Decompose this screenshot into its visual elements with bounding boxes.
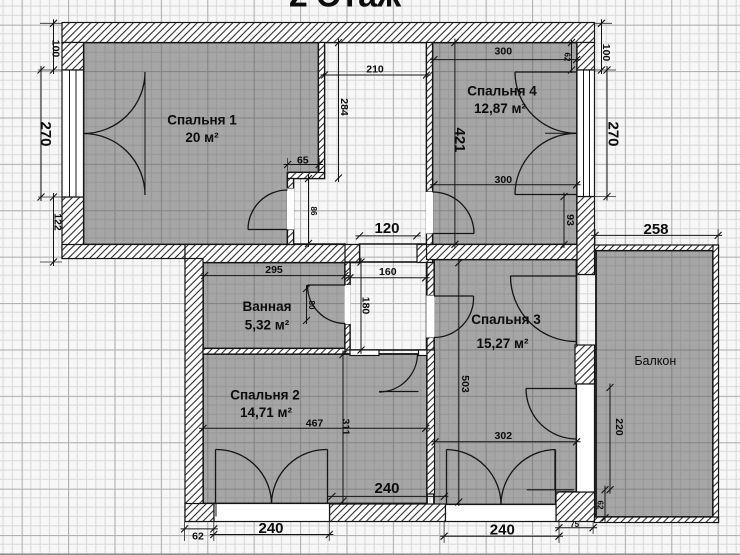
svg-text:Ванная: Ванная xyxy=(243,299,292,314)
svg-text:270: 270 xyxy=(37,121,54,146)
svg-text:Спальня 3: Спальня 3 xyxy=(471,312,541,327)
svg-text:220: 220 xyxy=(613,418,625,436)
svg-text:300: 300 xyxy=(495,46,513,58)
svg-text:503: 503 xyxy=(459,375,471,393)
svg-text:300: 300 xyxy=(495,174,513,186)
svg-text:62: 62 xyxy=(192,531,204,543)
svg-text:210: 210 xyxy=(366,64,384,76)
svg-text:311: 311 xyxy=(340,419,352,436)
svg-text:467: 467 xyxy=(306,418,324,430)
svg-text:5,32 м²: 5,32 м² xyxy=(245,318,290,333)
svg-text:122: 122 xyxy=(52,213,64,231)
svg-text:62: 62 xyxy=(596,501,605,510)
svg-text:Спальня 2: Спальня 2 xyxy=(230,387,300,402)
svg-text:14,71 м²: 14,71 м² xyxy=(240,405,293,420)
svg-text:93: 93 xyxy=(564,214,576,226)
svg-text:258: 258 xyxy=(643,221,668,238)
svg-text:100: 100 xyxy=(50,40,62,58)
svg-text:421: 421 xyxy=(451,127,468,152)
svg-text:62: 62 xyxy=(563,53,572,62)
svg-text:12,87 м²: 12,87 м² xyxy=(474,101,527,116)
svg-text:295: 295 xyxy=(265,264,283,276)
svg-text:80: 80 xyxy=(307,301,316,310)
svg-text:240: 240 xyxy=(490,522,515,539)
svg-text:240: 240 xyxy=(258,520,283,537)
svg-text:15,27 м²: 15,27 м² xyxy=(476,336,529,351)
svg-text:100: 100 xyxy=(600,44,612,62)
svg-text:284: 284 xyxy=(338,98,350,116)
svg-text:270: 270 xyxy=(605,121,622,146)
svg-text:75: 75 xyxy=(570,520,579,529)
svg-text:240: 240 xyxy=(374,480,399,497)
svg-text:2 Этаж: 2 Этаж xyxy=(289,0,402,15)
svg-text:Спальня 4: Спальня 4 xyxy=(467,84,537,99)
svg-text:302: 302 xyxy=(495,430,513,442)
svg-text:180: 180 xyxy=(360,297,372,315)
svg-text:160: 160 xyxy=(379,266,397,278)
svg-text:Балкон: Балкон xyxy=(634,354,676,368)
svg-text:65: 65 xyxy=(297,155,309,167)
svg-text:20 м²: 20 м² xyxy=(185,130,219,145)
svg-text:86: 86 xyxy=(309,207,318,216)
svg-text:Спальня 1: Спальня 1 xyxy=(167,113,237,128)
svg-text:120: 120 xyxy=(374,220,399,237)
